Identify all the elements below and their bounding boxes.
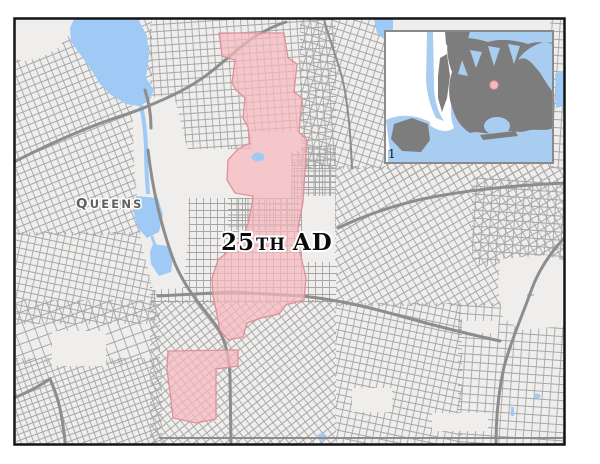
park-area: [462, 321, 498, 333]
park-area: [352, 388, 392, 412]
borough-label-initial: Q: [76, 196, 90, 212]
park-area: [432, 413, 488, 431]
pond: [511, 407, 514, 416]
borough-label-rest: UEENS: [90, 197, 144, 211]
district-suffix: TH: [256, 235, 286, 254]
cemetery-area: [52, 331, 106, 366]
district-number: 25: [221, 229, 255, 256]
inset-corner-mark: 1: [388, 147, 396, 161]
little-neck-bay: [555, 70, 564, 108]
street-grid-zone: [16, 358, 162, 445]
inset-locator-map: 1: [385, 31, 553, 163]
kissena-lake: [252, 153, 265, 162]
district-location-dot: [490, 81, 498, 89]
pond: [534, 394, 541, 399]
cemetery-area: [187, 149, 232, 198]
borough-label: QUEENS: [76, 196, 144, 212]
district-map-canvas: QUEENS 25THAD: [0, 0, 600, 464]
district-map-page: QUEENS 25THAD: [0, 0, 600, 464]
district-rest: AD: [292, 229, 333, 256]
